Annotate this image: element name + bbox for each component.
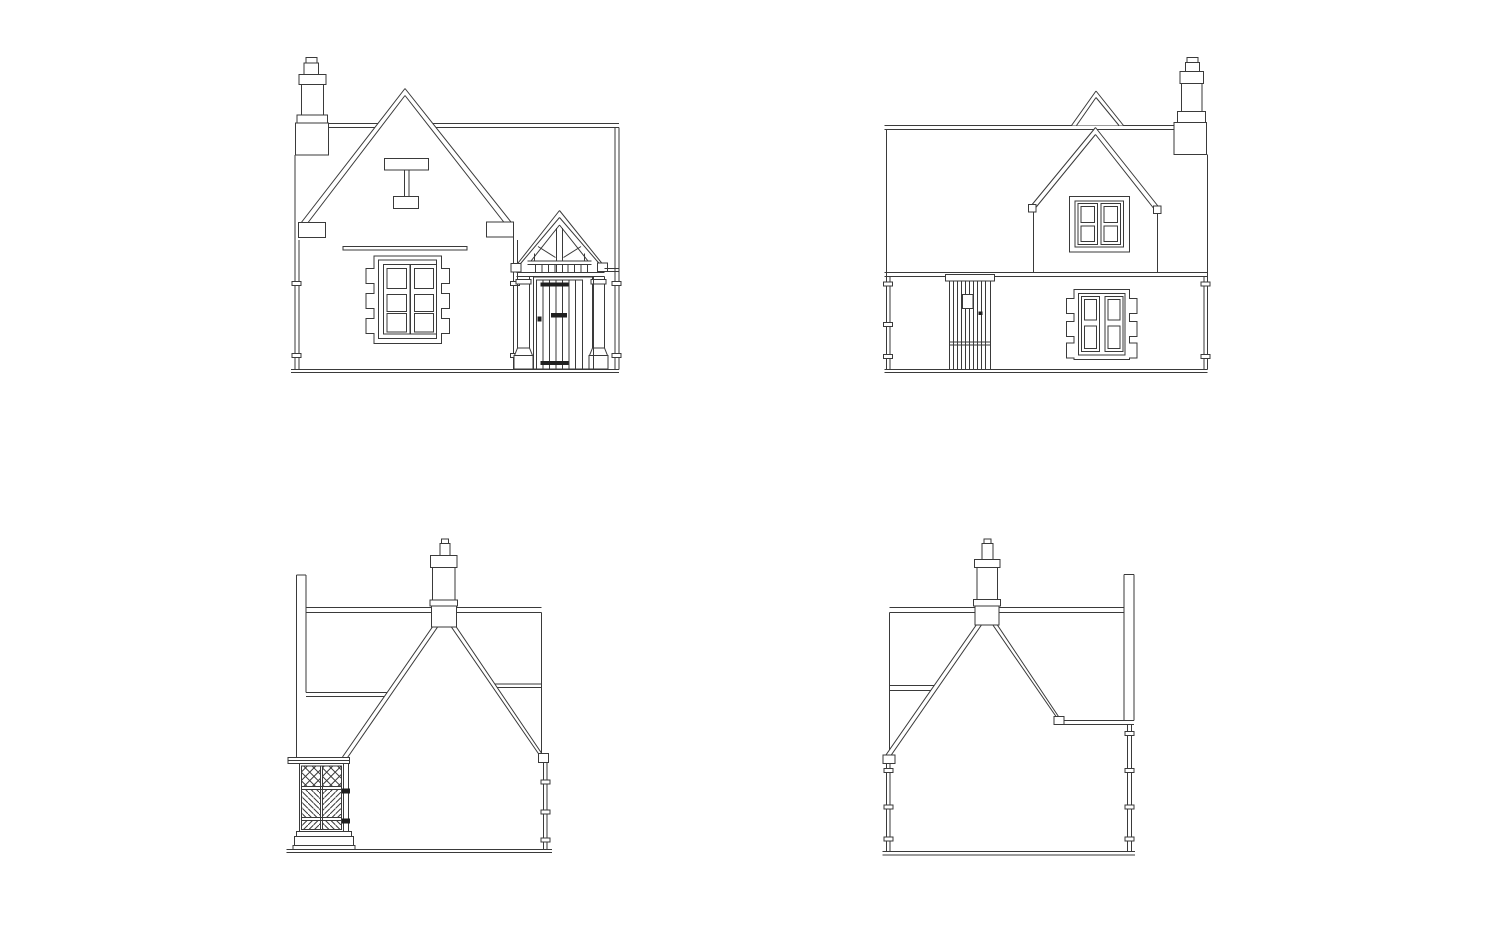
gable-window (1070, 197, 1130, 253)
strap-hinge-bottom (541, 361, 569, 365)
back-door (946, 275, 995, 370)
door-latch (979, 312, 983, 316)
gable-roof (885, 610, 1065, 760)
string-course (343, 247, 467, 251)
front-window (366, 256, 450, 344)
porch (511, 211, 608, 370)
left-downpipe (292, 155, 301, 370)
front-gable-peak-beyond (1072, 91, 1124, 126)
left-downpipe (884, 130, 893, 370)
porch-post-left (514, 277, 533, 370)
eaves-line (329, 124, 620, 128)
front-wall-edge (297, 575, 307, 758)
eaves-right (1063, 721, 1135, 725)
elevations-canvas (0, 0, 1500, 938)
kneeler-left (299, 223, 326, 238)
right-return-wall (605, 128, 622, 370)
chimney (296, 58, 329, 156)
side-elevation-plain-drawing (883, 539, 1136, 855)
chimney (974, 539, 1001, 625)
gable-roof (343, 610, 547, 761)
rear-wall-edge (1124, 575, 1134, 721)
door-knob (538, 317, 542, 322)
ridge-line (890, 608, 1125, 613)
porch-side-panel (288, 758, 355, 850)
eaves-band (885, 273, 1208, 277)
vision-panel (963, 295, 974, 309)
ridge-line (306, 608, 542, 613)
strap-hinge-top (541, 283, 569, 287)
chimney (1174, 58, 1207, 155)
eaves-right (495, 684, 542, 688)
ground-line (885, 370, 1208, 373)
right-downpipe (1125, 725, 1134, 852)
eaves-line (885, 126, 1175, 130)
front-elevation-drawing (291, 58, 621, 373)
door-planks (543, 280, 576, 370)
side-elevation-porch-drawing (287, 539, 553, 853)
rear-window (1067, 290, 1138, 360)
ground-line (883, 852, 1136, 856)
right-downpipe (1201, 155, 1210, 370)
porch-timber-gable (528, 225, 592, 273)
eaves-left (306, 693, 388, 697)
eaves-left (890, 686, 935, 691)
porch-post-right (589, 277, 608, 370)
drawing-sheet (0, 0, 1500, 938)
left-downpipe (883, 755, 895, 852)
rear-elevation-drawing (884, 58, 1211, 373)
ground-line (291, 370, 619, 373)
ground-line (287, 850, 553, 853)
porch-plinth (293, 832, 355, 850)
kneeler-right (487, 222, 514, 237)
strap-hinge-middle (551, 313, 567, 318)
porch-roof (515, 211, 605, 268)
porch-door (534, 277, 594, 370)
porch-header (517, 273, 605, 277)
right-downpipe (539, 754, 551, 850)
chimney (430, 539, 458, 627)
